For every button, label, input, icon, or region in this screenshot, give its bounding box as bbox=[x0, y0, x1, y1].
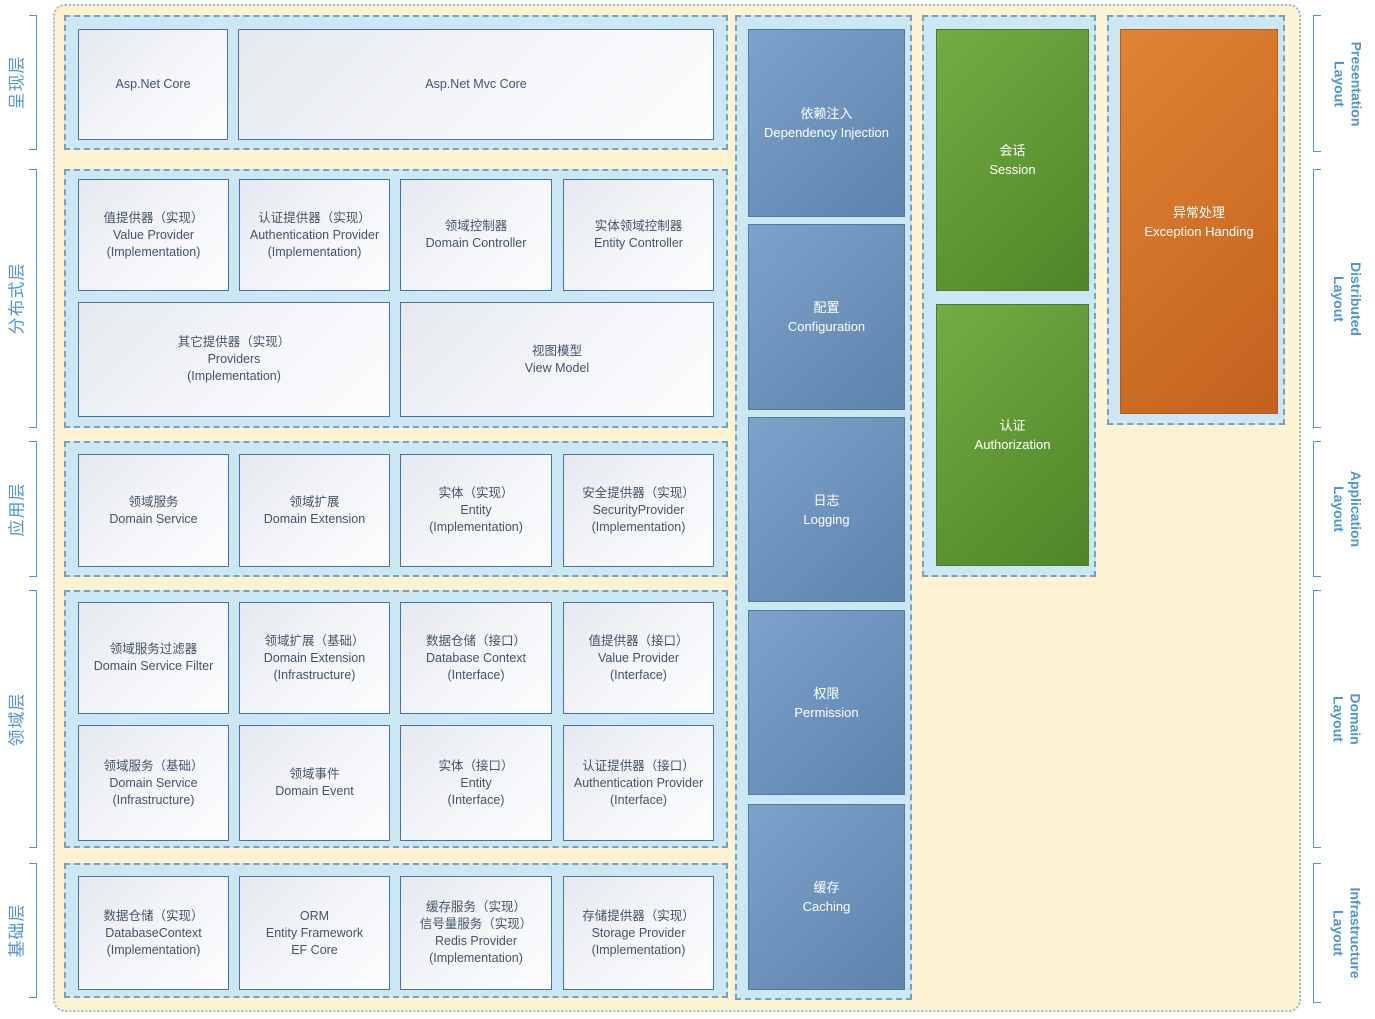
layer-label-line2: Layout bbox=[1330, 262, 1347, 336]
node-domain-controller: 领域控制器 Domain Controller bbox=[400, 179, 552, 291]
layer-label-text: 呈现层 bbox=[3, 56, 28, 110]
layer-band-application: 领域服务 Domain Service 领域扩展 Domain Extensio… bbox=[64, 441, 728, 577]
node-value-provider-interface: 值提供器（接口） Value Provider (Interface) bbox=[563, 602, 714, 714]
security-column: 会话 Session 认证 Authorization bbox=[922, 15, 1096, 577]
node-database-context-impl: 数据仓储（实现） DatabaseContext (Implementation… bbox=[78, 876, 229, 990]
node-aspnet-core: Asp.Net Core bbox=[78, 29, 228, 140]
layer-label-line2: Layout bbox=[1330, 693, 1347, 744]
bracket-right-infrastructure bbox=[1313, 863, 1321, 1003]
bracket-right-presentation bbox=[1313, 15, 1321, 152]
layer-label-line2: Layout bbox=[1330, 41, 1347, 126]
node-value-provider-impl: 值提供器（实现） Value Provider (Implementation) bbox=[78, 179, 229, 291]
layer-band-domain: 领域服务过滤器 Domain Service Filter 领域扩展（基础） D… bbox=[64, 590, 728, 848]
node-domain-service: 领域服务 Domain Service bbox=[78, 454, 229, 567]
node-storage-provider-impl: 存储提供器（实现） Storage Provider (Implementati… bbox=[563, 876, 714, 990]
node-auth-provider-interface: 认证提供器（接口） Authentication Provider (Inter… bbox=[563, 725, 714, 841]
layer-band-distributed: 值提供器（实现） Value Provider (Implementation)… bbox=[64, 169, 728, 428]
layer-label-text: Infrastructure Layout bbox=[1330, 887, 1364, 978]
layer-label-en-domain: Domain Layout bbox=[1321, 590, 1373, 848]
node-domain-service-infra: 领域服务（基础） Domain Service (Infrastructure) bbox=[78, 725, 229, 841]
architecture-diagram: 呈现层 分布式层 应用层 领域层 基础层 Asp.Net Core Asp.Ne… bbox=[0, 0, 1375, 1019]
bracket-right-distributed bbox=[1313, 169, 1321, 428]
layer-label-text: Presentation Layout bbox=[1330, 41, 1364, 126]
layer-label-zh-infrastructure: 基础层 bbox=[0, 863, 30, 998]
layer-band-infrastructure: 数据仓储（实现） DatabaseContext (Implementation… bbox=[64, 863, 728, 998]
node-exception-handling: 异常处理 Exception Handing bbox=[1120, 29, 1278, 414]
bracket-left-domain bbox=[29, 590, 37, 848]
bracket-left-application bbox=[29, 441, 37, 577]
node-authorization: 认证 Authorization bbox=[936, 304, 1089, 566]
bracket-right-application bbox=[1313, 441, 1321, 577]
node-auth-provider-impl: 认证提供器（实现） Authentication Provider (Imple… bbox=[239, 179, 390, 291]
bracket-left-presentation bbox=[29, 15, 37, 150]
node-entity-impl: 实体（实现） Entity (Implementation) bbox=[400, 454, 552, 567]
layer-label-text: Application Layout bbox=[1330, 471, 1364, 547]
node-domain-extension-infra: 领域扩展（基础） Domain Extension (Infrastructur… bbox=[239, 602, 390, 714]
layer-label-zh-distributed: 分布式层 bbox=[0, 169, 30, 428]
layer-label-line1: Application bbox=[1347, 471, 1364, 547]
layer-label-line1: Infrastructure bbox=[1347, 887, 1364, 978]
layer-label-line1: Presentation bbox=[1347, 41, 1364, 126]
layer-label-zh-domain: 领域层 bbox=[0, 590, 30, 848]
node-caching: 缓存 Caching bbox=[748, 804, 905, 990]
node-domain-extension: 领域扩展 Domain Extension bbox=[239, 454, 390, 567]
layer-label-text: Distributed Layout bbox=[1330, 262, 1364, 336]
layer-band-presentation: Asp.Net Core Asp.Net Mvc Core bbox=[64, 15, 728, 150]
layer-label-line1: Distributed bbox=[1347, 262, 1364, 336]
layer-label-text: 分布式层 bbox=[3, 263, 28, 335]
node-dependency-injection: 依赖注入 Dependency Injection bbox=[748, 29, 905, 217]
bracket-right-domain bbox=[1313, 590, 1321, 848]
layer-label-en-presentation: Presentation Layout bbox=[1321, 15, 1373, 152]
layer-label-zh-application: 应用层 bbox=[0, 441, 30, 577]
node-session: 会话 Session bbox=[936, 29, 1089, 291]
layer-label-line2: Layout bbox=[1330, 887, 1347, 978]
node-entity-controller: 实体领域控制器 Entity Controller bbox=[563, 179, 714, 291]
layer-label-text: 基础层 bbox=[3, 904, 28, 958]
bracket-left-infrastructure bbox=[29, 863, 37, 998]
node-configuration: 配置 Configuration bbox=[748, 224, 905, 410]
layer-label-en-application: Application Layout bbox=[1321, 441, 1373, 577]
layer-label-line1: Domain bbox=[1347, 693, 1364, 744]
node-security-provider-impl: 安全提供器（实现） SecurityProvider (Implementati… bbox=[563, 454, 714, 567]
layer-label-text: 应用层 bbox=[3, 482, 28, 536]
node-orm-ef-core: ORM Entity Framework EF Core bbox=[239, 876, 390, 990]
node-entity-interface: 实体（接口） Entity (Interface) bbox=[400, 725, 552, 841]
node-view-model: 视图模型 View Model bbox=[400, 302, 714, 417]
layer-label-zh-presentation: 呈现层 bbox=[0, 15, 30, 150]
node-logging: 日志 Logging bbox=[748, 417, 905, 602]
node-database-context-interface: 数据仓储（接口） Database Context (Interface) bbox=[400, 602, 552, 714]
layer-label-text: Domain Layout bbox=[1330, 693, 1364, 744]
node-permission: 权限 Permission bbox=[748, 610, 905, 795]
layer-label-en-infrastructure: Infrastructure Layout bbox=[1321, 863, 1373, 1003]
node-domain-service-filter: 领域服务过滤器 Domain Service Filter bbox=[78, 602, 229, 714]
layer-label-en-distributed: Distributed Layout bbox=[1321, 169, 1373, 428]
exception-column: 异常处理 Exception Handing bbox=[1107, 15, 1285, 425]
services-column: 依赖注入 Dependency Injection 配置 Configurati… bbox=[735, 15, 912, 1000]
layer-label-line2: Layout bbox=[1330, 471, 1347, 547]
node-aspnet-mvc-core: Asp.Net Mvc Core bbox=[238, 29, 714, 140]
node-domain-event: 领域事件 Domain Event bbox=[239, 725, 390, 841]
layer-label-text: 领域层 bbox=[3, 692, 28, 746]
node-providers-impl: 其它提供器（实现） Providers (Implementation) bbox=[78, 302, 390, 417]
bracket-left-distributed bbox=[29, 169, 37, 428]
node-redis-provider-impl: 缓存服务（实现） 信号量服务（实现） Redis Provider (Imple… bbox=[400, 876, 552, 990]
